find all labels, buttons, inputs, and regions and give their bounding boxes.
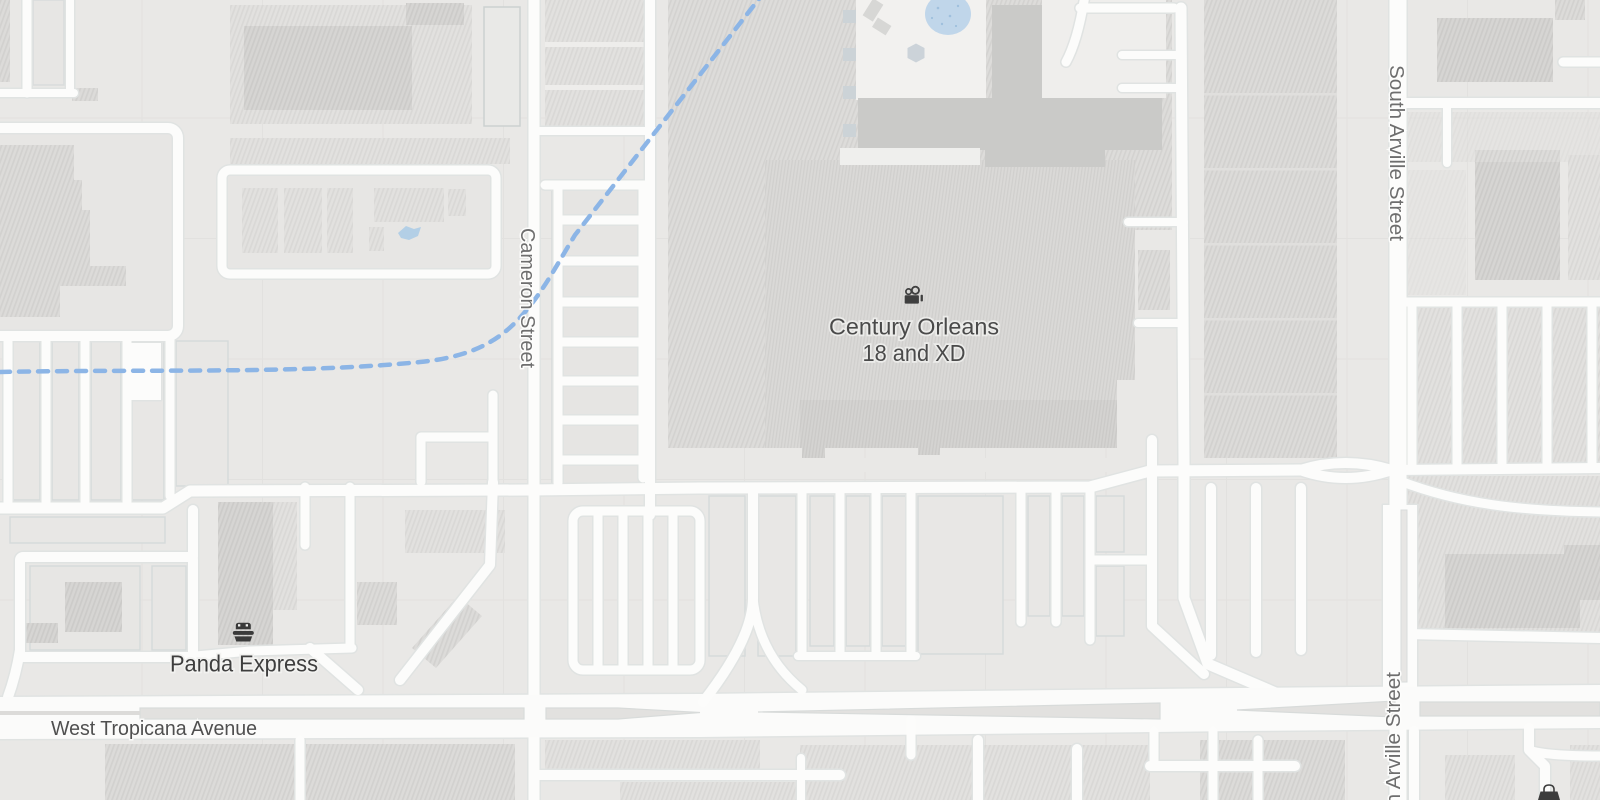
svg-text:18 and XD: 18 and XD <box>863 340 966 366</box>
svg-text:South Arville Street: South Arville Street <box>1385 65 1407 241</box>
svg-text:South Arville Street: South Arville Street <box>1383 672 1405 800</box>
svg-text:Panda Express: Panda Express <box>170 651 318 677</box>
svg-text:Cameron Street: Cameron Street <box>516 228 538 368</box>
svg-text:West Tropicana Avenue: West Tropicana Avenue <box>51 717 257 740</box>
svg-text:Century Orleans: Century Orleans <box>829 314 999 340</box>
